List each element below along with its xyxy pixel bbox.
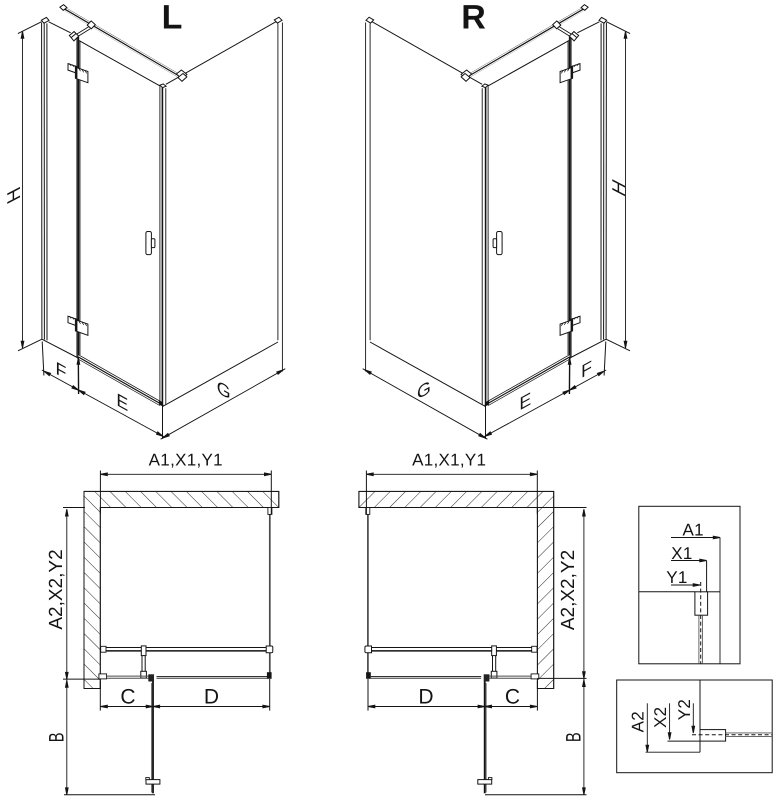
svg-text:A2,X2,Y2: A2,X2,Y2 xyxy=(558,550,579,630)
svg-text:G: G xyxy=(417,376,431,404)
svg-text:C: C xyxy=(120,685,135,708)
svg-text:H: H xyxy=(3,183,24,207)
svg-text:X1: X1 xyxy=(671,544,692,563)
svg-text:X2: X2 xyxy=(651,707,670,728)
svg-text:F: F xyxy=(55,358,66,384)
svg-text:G: G xyxy=(217,376,231,404)
svg-text:A2,X2,Y2: A2,X2,Y2 xyxy=(46,549,67,629)
svg-text:Y2: Y2 xyxy=(675,699,694,720)
svg-text:A2: A2 xyxy=(629,711,648,732)
svg-text:A1: A1 xyxy=(683,520,704,539)
svg-text:D: D xyxy=(204,685,219,708)
svg-text:R: R xyxy=(461,0,486,37)
svg-text:B: B xyxy=(45,732,68,742)
svg-text:A1,X1,Y1: A1,X1,Y1 xyxy=(412,451,486,470)
svg-text:E: E xyxy=(519,388,531,415)
svg-text:L: L xyxy=(162,0,183,37)
svg-text:B: B xyxy=(562,732,585,742)
svg-text:A1,X1,Y1: A1,X1,Y1 xyxy=(149,450,223,469)
svg-text:C: C xyxy=(505,685,520,708)
svg-text:D: D xyxy=(418,685,433,708)
svg-text:Y1: Y1 xyxy=(666,568,687,587)
